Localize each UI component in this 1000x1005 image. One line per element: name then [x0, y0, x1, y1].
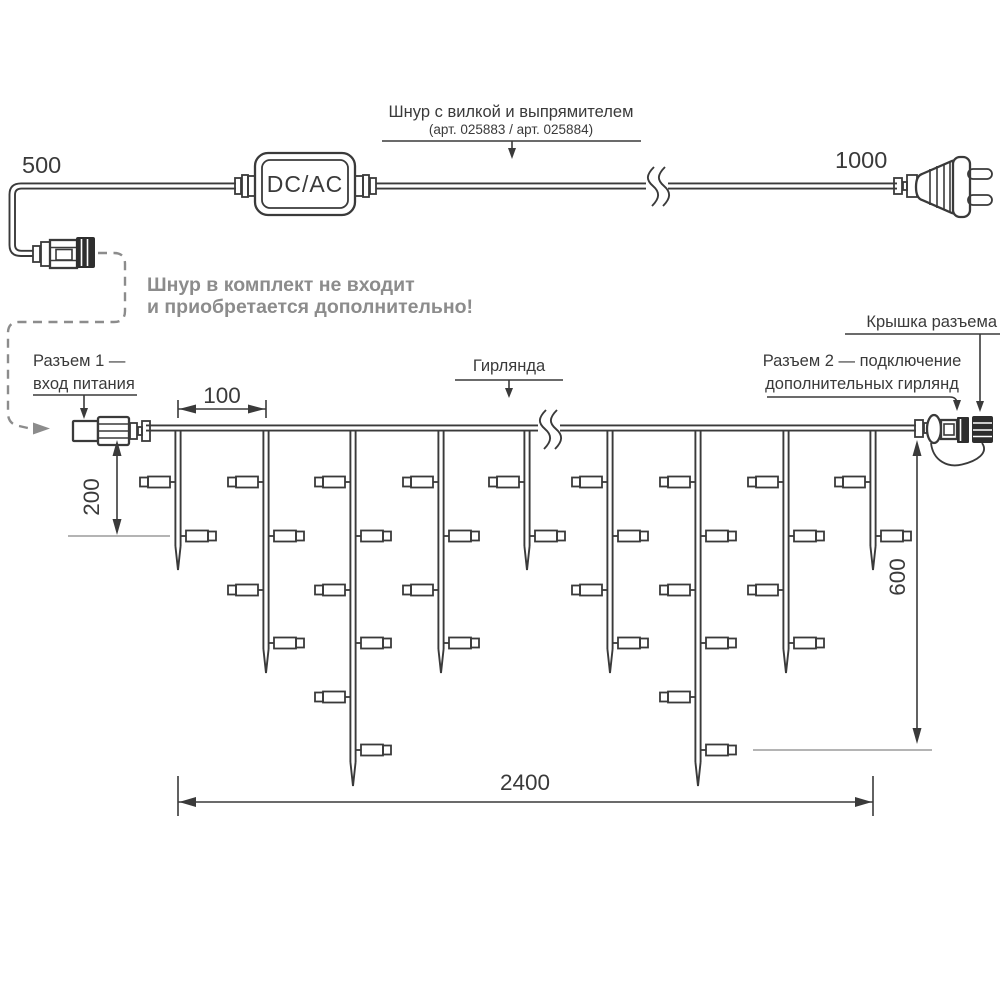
seal-ring: [927, 415, 941, 443]
plug-prong: [968, 169, 992, 179]
lamp: [835, 477, 870, 488]
connector-cap: [972, 416, 993, 443]
lamp: [789, 531, 824, 542]
dim-200-label: 200: [79, 478, 104, 516]
converter-label: DC/AC: [267, 171, 344, 197]
cap-label: Крышка разъема: [866, 313, 997, 331]
drop-wire: [228, 431, 304, 673]
callout-arrowhead: [976, 401, 984, 412]
lamp: [748, 585, 783, 596]
connector2-callout: Разъем 2 — подключение дополнительных ги…: [763, 352, 962, 411]
connector1-label-line2: вход питания: [33, 375, 135, 393]
drop-wire: [140, 431, 216, 570]
note-line-2: и приобретается дополнительно!: [147, 296, 473, 318]
lamp: [572, 477, 607, 488]
dim-1000-label: 1000: [835, 147, 887, 173]
lamp: [403, 585, 438, 596]
drop-wire: [572, 431, 648, 673]
lamp: [613, 531, 648, 542]
not-included-note: Шнур в комплект не входит и приобретаетс…: [147, 274, 473, 318]
dashed-arrowhead: [33, 423, 50, 435]
drop-wire: [660, 431, 736, 786]
lamp: [140, 477, 175, 488]
black-cap: [76, 237, 95, 268]
lamp: [315, 585, 350, 596]
lamp: [572, 585, 607, 596]
connector1-callout: Разъем 1 — вход питания: [33, 352, 137, 419]
lamp: [315, 692, 350, 703]
connector2-label-line1: Разъем 2 — подключение: [763, 352, 962, 370]
dc-ac-converter: DC/AC: [235, 153, 376, 215]
lamp: [269, 638, 304, 649]
lamp: [613, 638, 648, 649]
note-line-1: Шнур в комплект не входит: [147, 274, 415, 296]
lamp: [444, 638, 479, 649]
lamp: [701, 531, 736, 542]
dc-cable: [10, 183, 237, 256]
callout-arrowhead: [80, 408, 88, 419]
cord-callout-title: Шнур с вилкой и выпрямителем: [389, 103, 634, 121]
garland-label: Гирлянда: [473, 357, 546, 375]
ac-cable: [376, 167, 897, 206]
drop-wire: [315, 431, 391, 786]
lamp: [660, 585, 695, 596]
garland-diagram: 500 DC/AC: [0, 0, 1000, 1000]
callout-arrowhead: [508, 148, 516, 159]
lamp: [269, 531, 304, 542]
lamp: [228, 477, 263, 488]
drop-wire: [403, 431, 479, 673]
drops-layer: [140, 431, 911, 786]
wire-break-mark: [538, 410, 561, 449]
lamp: [701, 638, 736, 649]
garland-main-wire: [146, 410, 916, 449]
lamp: [315, 477, 350, 488]
dim-100: 100: [178, 383, 266, 418]
lamp: [403, 477, 438, 488]
diagram-page: 500 DC/AC: [0, 0, 1000, 1000]
lamp: [701, 745, 736, 756]
lamp: [876, 531, 911, 542]
lamp: [444, 531, 479, 542]
lamp: [356, 531, 391, 542]
lamp: [660, 692, 695, 703]
dc-plug-connector: [33, 237, 95, 268]
garland-callout: Гирлянда: [455, 357, 563, 398]
callout-arrowhead: [505, 388, 513, 398]
connector2-label-line2: дополнительных гирлянд: [765, 375, 959, 393]
garland-assembly: Разъем 1 — вход питания Гирлянда Крышка …: [33, 313, 1000, 816]
lamp: [228, 585, 263, 596]
mains-plug: [894, 157, 992, 217]
connector1-label-line1: Разъем 1 —: [33, 352, 126, 370]
lamp: [789, 638, 824, 649]
cable-break-mark: [648, 167, 669, 206]
lamp: [356, 638, 391, 649]
dim-500-label: 500: [22, 152, 61, 178]
lamp: [660, 477, 695, 488]
lamp: [530, 531, 565, 542]
cap-tether: [931, 443, 984, 465]
drop-wire: [835, 431, 911, 570]
lamp: [489, 477, 524, 488]
dim-2400-label: 2400: [500, 770, 550, 795]
drop-wire: [489, 431, 565, 570]
end-connector: [915, 415, 993, 465]
start-connector: [73, 417, 150, 445]
plug-prong: [968, 195, 992, 205]
not-included-dashed-path: [8, 253, 125, 435]
callout-arrowhead: [953, 400, 961, 411]
cord-callout-subtitle: (арт. 025883 / арт. 025884): [429, 122, 593, 137]
drop-wire: [748, 431, 824, 673]
lamp: [748, 477, 783, 488]
dim-2400: 2400: [178, 770, 873, 816]
dim-100-label: 100: [203, 383, 241, 408]
lamp: [356, 745, 391, 756]
cord-callout: Шнур с вилкой и выпрямителем (арт. 02588…: [382, 103, 641, 159]
dim-600-label: 600: [885, 558, 910, 596]
lamp: [181, 531, 216, 542]
